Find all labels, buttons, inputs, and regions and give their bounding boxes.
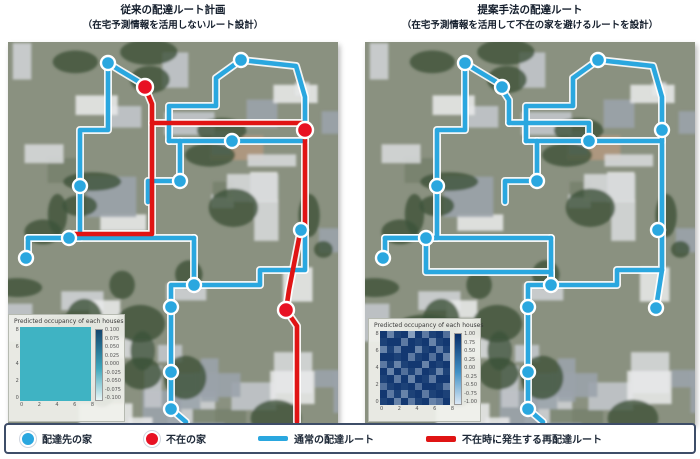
- colorbar: [95, 329, 103, 401]
- blue-node-icon: [20, 431, 36, 447]
- heatmap-cell: [436, 398, 443, 405]
- delivery-node-blue: [164, 365, 178, 379]
- right-title-line2: （在宅予測情報を活用して不在の家を避けるルートを設計）: [365, 18, 695, 34]
- heatmap-cell: [415, 353, 422, 360]
- colorbar-tick-label: 0.100: [105, 327, 121, 333]
- heatmap-cell: [394, 361, 401, 368]
- heatmap-cell: [443, 390, 450, 397]
- x-tick-label: 0: [20, 402, 23, 408]
- heatmap-cell: [436, 353, 443, 360]
- heatmap-cell: [436, 390, 443, 397]
- heatmap-plot: [380, 331, 451, 405]
- heatmap-cell: [415, 331, 422, 338]
- heatmap-cell: [408, 390, 415, 397]
- heatmap-cell: [401, 331, 408, 338]
- x-tick-label: 6: [433, 406, 436, 412]
- heatmap-cell: [387, 375, 394, 382]
- delivery-node-blue: [376, 251, 390, 265]
- legend-item-delivery-house: 配達先の家: [20, 431, 92, 447]
- heatmap-plot: [20, 327, 91, 401]
- map-texture-building: [550, 409, 604, 424]
- delivery-node-blue: [419, 231, 433, 245]
- map-texture-building: [322, 111, 338, 134]
- heatmap-cell: [380, 331, 387, 338]
- heatmap-cell: [429, 375, 436, 382]
- inset-y-axis: 86420: [372, 331, 379, 405]
- map-texture-building: [627, 371, 671, 404]
- heatmap-cell: [443, 368, 450, 375]
- y-tick-label: 2: [372, 382, 379, 388]
- colorbar-tick-label: -0.075: [105, 387, 121, 393]
- delivery-node-blue: [649, 301, 663, 315]
- map-texture-tree: [566, 189, 615, 227]
- red-node-icon: [144, 431, 160, 447]
- colorbar-tick-label: -0.50: [464, 382, 477, 388]
- y-tick-label: 0: [372, 399, 379, 405]
- colorbar-tick-label: -0.75: [464, 391, 477, 397]
- heatmap-cell: [408, 375, 415, 382]
- y-tick-label: 6: [372, 348, 379, 354]
- heatmap-cell: [387, 331, 394, 338]
- delivery-node-blue: [651, 223, 665, 237]
- heatmap-cell: [429, 368, 436, 375]
- heatmap-cell: [387, 368, 394, 375]
- heatmap-cell: [401, 361, 408, 368]
- heatmap-cell: [387, 353, 394, 360]
- heatmap-cell: [408, 361, 415, 368]
- heatmap-cell: [422, 346, 429, 353]
- occupancy-inset-chart: Predicted occupancy of each houses864201…: [368, 318, 481, 422]
- heatmap-cell: [415, 398, 422, 405]
- map-texture-building: [382, 144, 421, 163]
- heatmap-cell: [394, 346, 401, 353]
- colorbar-tick-label: -0.050: [105, 378, 121, 384]
- heatmap-cell: [380, 368, 387, 375]
- map-texture-building: [605, 154, 654, 166]
- heatmap-cell: [408, 368, 415, 375]
- x-tick-label: 0: [380, 406, 383, 412]
- heatmap-cell: [429, 346, 436, 353]
- heatmap-cell: [401, 338, 408, 345]
- y-tick-label: 4: [12, 361, 19, 367]
- heatmap-cell: [394, 390, 401, 397]
- delivery-node-blue: [294, 223, 308, 237]
- delivery-node-blue: [521, 402, 535, 416]
- heatmap-cell: [408, 353, 415, 360]
- delivery-node-blue: [73, 179, 87, 193]
- heatmap-cell: [436, 361, 443, 368]
- occupancy-inset-chart: Predicted occupancy of each houses864200…: [8, 314, 125, 422]
- heatmap-cell: [387, 346, 394, 353]
- map-texture-tree: [48, 194, 67, 235]
- heatmap-cell: [422, 398, 429, 405]
- heatmap-cell: [415, 368, 422, 375]
- legend-item-redelivery-route: 不在時に発生する再配達ルート: [426, 431, 602, 446]
- delivery-node-blue: [173, 174, 187, 188]
- map-texture-building: [314, 370, 338, 388]
- heatmap-cell: [429, 361, 436, 368]
- colorbar-tick-label: -0.100: [105, 395, 121, 401]
- x-tick-label: 2: [38, 402, 41, 408]
- legend-item-absent-house: 不在の家: [144, 431, 206, 447]
- heatmap-cell: [443, 338, 450, 345]
- inset-x-axis: 02468: [20, 402, 94, 408]
- heatmap-cell: [401, 375, 408, 382]
- inset-y-axis: 86420: [12, 327, 19, 401]
- heatmap-cell: [443, 353, 450, 360]
- heatmap-cell: [387, 338, 394, 345]
- colorbar-ticks: 1.000.750.500.250.00-0.25-0.50-0.75-1.00: [464, 331, 477, 405]
- heatmap-cell: [429, 338, 436, 345]
- satellite-map-before: Predicted occupancy of each houses864200…: [8, 42, 338, 424]
- heatmap-cell: [443, 346, 450, 353]
- colorbar-tick-label: -1.00: [464, 399, 477, 405]
- colorbar-ticks: 0.1000.0750.0500.0250.000-0.025-0.050-0.…: [105, 327, 121, 401]
- heatmap-cell: [443, 375, 450, 382]
- heatmap-cell: [408, 338, 415, 345]
- x-tick-label: 4: [415, 406, 418, 412]
- delivery-node-blue: [495, 80, 509, 94]
- map-texture-building: [13, 43, 32, 79]
- heatmap-cell: [422, 383, 429, 390]
- satellite-map-after: Predicted occupancy of each houses864201…: [365, 42, 695, 424]
- delivery-node-blue: [430, 179, 444, 193]
- colorbar-tick-label: 0.25: [464, 357, 477, 363]
- heatmap-cell: [387, 398, 394, 405]
- delivery-node-blue: [530, 174, 544, 188]
- x-tick-label: 8: [451, 406, 454, 412]
- heatmap-cell: [443, 361, 450, 368]
- heatmap-cell: [380, 383, 387, 390]
- map-texture-tree: [420, 172, 478, 191]
- delivery-node-blue: [544, 278, 558, 292]
- heatmap-cell: [401, 398, 408, 405]
- heatmap-cell: [380, 375, 387, 382]
- map-texture-building: [630, 85, 674, 103]
- map-texture-tree: [314, 241, 333, 258]
- heatmap-cell: [436, 375, 443, 382]
- heatmap-cell: [436, 331, 443, 338]
- map-texture-tree: [130, 331, 154, 370]
- heatmap-cell: [436, 338, 443, 345]
- absent-node-red: [137, 79, 153, 95]
- delivery-node-blue: [101, 56, 115, 70]
- heatmap-cell: [394, 368, 401, 375]
- colorbar-tick-label: -0.25: [464, 374, 477, 380]
- colorbar-tick-label: 0.075: [105, 336, 121, 342]
- left-panel-title: 従来の配達ルート計画 （在宅予測情報を活用しないルート設計）: [8, 2, 338, 34]
- x-tick-label: 6: [73, 402, 76, 408]
- heatmap-cell: [415, 338, 422, 345]
- inset-x-axis: 02468: [380, 406, 454, 412]
- map-texture-building: [193, 409, 247, 424]
- heatmap-cell: [401, 353, 408, 360]
- colorbar-tick-label: 0.75: [464, 340, 477, 346]
- heatmap-cell: [429, 331, 436, 338]
- delivery-node-blue: [458, 56, 472, 70]
- y-tick-label: 4: [372, 365, 379, 371]
- heatmap-cell: [422, 368, 429, 375]
- heatmap-cell: [422, 390, 429, 397]
- heatmap-cell: [422, 331, 429, 338]
- heatmap-cell: [429, 353, 436, 360]
- heatmap-cell: [429, 383, 436, 390]
- left-title-line1: 従来の配達ルート計画: [8, 2, 338, 18]
- heatmap-cell: [380, 338, 387, 345]
- delivery-node-blue: [164, 402, 178, 416]
- heatmap-cell: [429, 390, 436, 397]
- legend-label: 不在時に発生する再配達ルート: [462, 431, 602, 446]
- map-texture-tree: [53, 51, 98, 74]
- heatmap-cell: [394, 383, 401, 390]
- map-texture-building: [671, 370, 695, 388]
- heatmap-cell: [443, 398, 450, 405]
- heatmap-cell: [436, 346, 443, 353]
- map-texture-building: [604, 100, 635, 129]
- delivery-node-blue: [655, 123, 669, 137]
- red-route-icon: [426, 436, 456, 442]
- heatmap-cell: [408, 383, 415, 390]
- heatmap-cell: [415, 383, 422, 390]
- left-title-line2: （在宅予測情報を活用しないルート設計）: [8, 18, 338, 34]
- heatmap-cell: [422, 361, 429, 368]
- heatmap-cell: [380, 398, 387, 405]
- y-tick-label: 0: [12, 395, 19, 401]
- colorbar-tick-label: 0.000: [105, 361, 121, 367]
- heatmap-cell: [380, 390, 387, 397]
- heatmap-cell: [443, 383, 450, 390]
- delivery-node-blue: [62, 231, 76, 245]
- map-texture-building: [25, 144, 64, 163]
- right-title-line1: 提案手法の配達ルート: [365, 2, 695, 18]
- colorbar-tick-label: 0.025: [105, 353, 121, 359]
- figure-root: 従来の配達ルート計画 （在宅予測情報を活用しないルート設計） 提案手法の配達ルー…: [0, 0, 700, 459]
- heatmap-cell: [408, 346, 415, 353]
- heatmap-cell: [394, 375, 401, 382]
- heatmap-cell: [415, 390, 422, 397]
- heatmap-cell: [443, 331, 450, 338]
- y-tick-label: 2: [12, 378, 19, 384]
- heatmap-cell: [387, 361, 394, 368]
- inset-title: Predicted occupancy of each houses: [14, 318, 121, 325]
- delivery-node-blue: [225, 134, 239, 148]
- colorbar-tick-label: 0.050: [105, 344, 121, 350]
- map-texture-tree: [109, 271, 135, 299]
- colorbar-tick-label: 1.00: [464, 331, 477, 337]
- heatmap-cell: [422, 353, 429, 360]
- heatmap-cell: [415, 375, 422, 382]
- heatmap-cell: [394, 331, 401, 338]
- legend-label: 配達先の家: [42, 431, 92, 446]
- heatmap-cell: [394, 353, 401, 360]
- map-texture-tree: [405, 194, 424, 235]
- heatmap-cell: [436, 383, 443, 390]
- heatmap-cell: [415, 346, 422, 353]
- heatmap-cell: [401, 346, 408, 353]
- map-texture-building: [370, 43, 389, 79]
- colorbar-tick-label: -0.025: [105, 370, 121, 376]
- right-panel-title: 提案手法の配達ルート （在宅予測情報を活用して不在の家を避けるルートを設計）: [365, 2, 695, 34]
- heatmap-cell: [394, 398, 401, 405]
- y-tick-label: 6: [12, 344, 19, 350]
- map-texture-tree: [410, 51, 455, 74]
- blue-route-icon: [258, 436, 288, 441]
- delivery-node-blue: [187, 278, 201, 292]
- heatmap-cell: [408, 331, 415, 338]
- inset-title: Predicted occupancy of each houses: [374, 322, 477, 329]
- colorbar-tick-label: 0.50: [464, 348, 477, 354]
- heatmap-cell: [401, 368, 408, 375]
- absent-node-red: [278, 302, 294, 318]
- legend-item-normal-route: 通常の配達ルート: [258, 431, 374, 446]
- delivery-node-blue: [521, 365, 535, 379]
- map-texture-tree: [671, 241, 690, 258]
- delivery-node-blue: [591, 53, 605, 67]
- heatmap-cell: [415, 361, 422, 368]
- map-texture-building: [270, 371, 314, 404]
- delivery-node-blue: [521, 300, 535, 314]
- map-texture-tree: [209, 189, 258, 227]
- heatmap-cell: [422, 338, 429, 345]
- map-texture-tree: [63, 172, 121, 191]
- delivery-node-blue: [234, 53, 248, 67]
- x-tick-label: 8: [91, 402, 94, 408]
- legend-label: 不在の家: [166, 431, 206, 446]
- heatmap-cell: [394, 338, 401, 345]
- absent-node-red: [297, 122, 313, 138]
- map-texture-building: [679, 111, 695, 134]
- heatmap-cell: [408, 398, 415, 405]
- heatmap-cell: [387, 383, 394, 390]
- heatmap-cell: [380, 353, 387, 360]
- heatmap-cell: [422, 375, 429, 382]
- legend-bar: 配達先の家 不在の家 通常の配達ルート 不在時に発生する再配達ルート: [4, 423, 696, 454]
- map-texture-building: [248, 154, 297, 166]
- delivery-node-blue: [19, 251, 33, 265]
- map-texture-building: [273, 85, 317, 103]
- heatmap-cell: [429, 398, 436, 405]
- heatmap-cell: [380, 346, 387, 353]
- delivery-node-blue: [582, 134, 596, 148]
- y-tick-label: 8: [12, 327, 19, 333]
- colorbar: [454, 333, 462, 405]
- map-texture-tree: [487, 331, 511, 370]
- heatmap-cell: [436, 368, 443, 375]
- delivery-node-blue: [164, 300, 178, 314]
- heatmap-cell: [401, 383, 408, 390]
- x-tick-label: 4: [55, 402, 58, 408]
- heatmap-cell: [401, 390, 408, 397]
- colorbar-tick-label: 0.00: [464, 365, 477, 371]
- y-tick-label: 8: [372, 331, 379, 337]
- heatmap-cell: [387, 390, 394, 397]
- x-tick-label: 2: [398, 406, 401, 412]
- legend-label: 通常の配達ルート: [294, 431, 374, 446]
- heatmap-cell: [380, 361, 387, 368]
